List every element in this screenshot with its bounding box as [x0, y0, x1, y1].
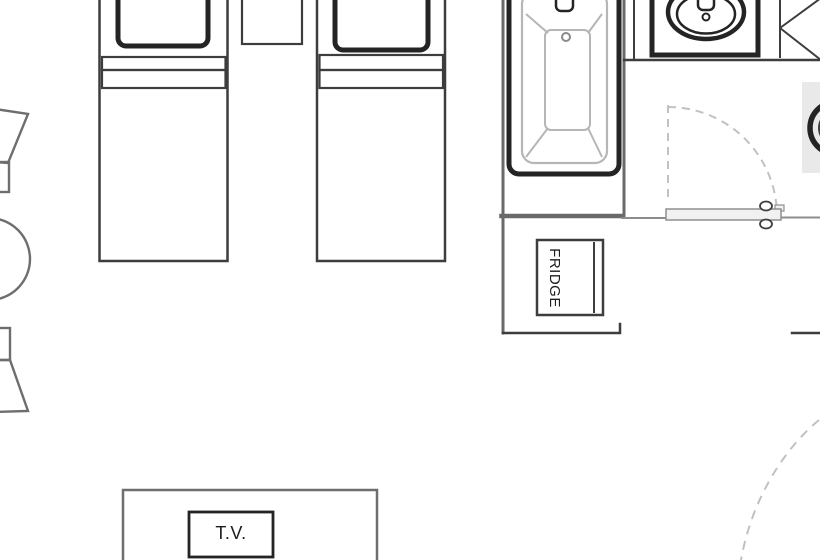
dining-set	[0, 109, 30, 412]
fridge-label: FRIDGE	[543, 237, 565, 319]
nightstand-icon	[242, 0, 302, 44]
swing-arc	[668, 107, 777, 216]
door-swing-arc-icon	[668, 105, 777, 216]
tub-floor	[545, 30, 590, 130]
tub-slope	[588, 14, 602, 33]
tv-label: T.V.	[190, 522, 272, 544]
blanket-band	[102, 57, 226, 70]
blanket-band	[102, 70, 226, 88]
twin-bed-right	[317, 0, 445, 261]
drain-icon	[703, 14, 710, 21]
blanket-band	[320, 55, 444, 70]
tub-slope	[588, 128, 602, 157]
chair-icon	[0, 360, 28, 412]
drain-icon	[562, 33, 570, 41]
pillow-icon	[335, 0, 428, 50]
vanity-sink-icon	[634, 0, 758, 60]
chair-backrest	[0, 162, 9, 192]
tub-slope	[526, 14, 548, 33]
second-door-swing-arc-icon	[741, 420, 819, 560]
toilet-icon	[802, 82, 820, 173]
door-knob-icon	[760, 220, 772, 229]
tub-slope	[526, 128, 548, 157]
shelf-diagonal	[780, 28, 820, 60]
bathtub-icon	[509, 0, 619, 174]
round-table-icon	[0, 218, 30, 300]
floor-plan-drawing	[0, 0, 820, 560]
tub-outer	[509, 0, 619, 174]
door-knob-icon	[760, 202, 772, 211]
sink-faucet-icon	[698, 0, 714, 10]
pillow-icon	[118, 0, 208, 46]
chair-backrest	[0, 328, 10, 360]
chair-icon	[0, 109, 28, 163]
tub-faucet-icon	[556, 0, 573, 11]
shelf-diagonal	[780, 0, 820, 28]
wall-fridge-alcove	[503, 324, 620, 333]
corner-shelf-icon	[780, 0, 820, 60]
floor-plan: FRIDGE T.V.	[0, 0, 820, 560]
swing-door-icon	[666, 202, 784, 229]
blanket-band	[320, 70, 444, 88]
twin-bed-left	[100, 0, 228, 261]
